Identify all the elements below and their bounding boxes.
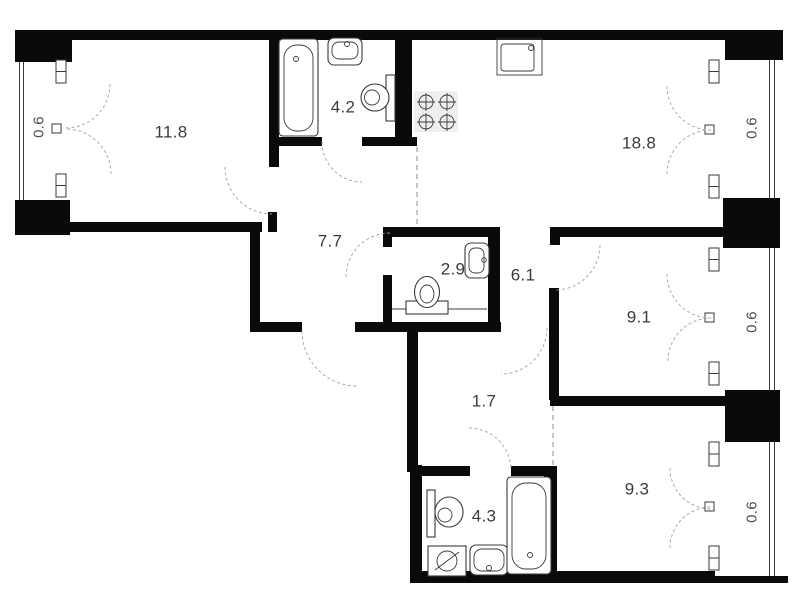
balcony-area-label: 0.6	[744, 311, 761, 333]
door-handle	[705, 313, 714, 322]
bathroom-area-label: 4.2	[331, 98, 356, 117]
wc-sink	[465, 243, 489, 278]
stove	[414, 91, 458, 132]
sink-2	[470, 545, 508, 575]
balcony-door-arc	[66, 84, 110, 128]
wc-area-label: 2.9	[441, 260, 466, 279]
door-handle	[705, 125, 714, 134]
room-area-label: 11.8	[154, 123, 187, 142]
balcony-area-label: 0.6	[744, 117, 761, 139]
bathroom2-area-label: 4.3	[472, 507, 497, 526]
balcony-door-arc	[66, 129, 111, 174]
balcony-door-arc	[667, 130, 711, 174]
window-frame	[709, 248, 719, 271]
corridor-area-label: 6.1	[511, 266, 536, 285]
kitchen-area-label: 18.8	[622, 134, 656, 153]
sink	[328, 38, 362, 65]
door-handle	[52, 124, 61, 133]
bathroom-door-arc	[322, 142, 362, 182]
bedroom2-area-label: 9.3	[625, 480, 650, 499]
window-frame	[709, 442, 719, 466]
bedroom-area-label: 9.1	[627, 308, 652, 327]
corridor-door-arc	[501, 328, 547, 374]
bedroom-door-arc	[555, 245, 600, 290]
window-frame	[56, 174, 66, 197]
balcony-door-arc	[670, 507, 711, 548]
entrance-door-arc	[302, 331, 357, 386]
window-frame	[56, 60, 66, 83]
room-door-arc	[225, 167, 272, 214]
washing-machine	[428, 546, 466, 576]
balcony-area-label: 0.6	[744, 501, 761, 523]
toilet-2	[427, 490, 463, 537]
bathroom2-door-arc	[469, 428, 511, 470]
bathtub	[279, 39, 318, 136]
room-labels: 11.8 4.2 18.8 7.7 2.9 6.1 9.1 1.7 9.3 4.…	[154, 98, 656, 526]
window-frame	[709, 60, 719, 83]
balcony-door-arc	[667, 274, 711, 318]
window-frame	[709, 362, 719, 385]
balcony-area-label: 0.6	[31, 116, 48, 138]
floor-plan-svg: 11.8 4.2 18.8 7.7 2.9 6.1 9.1 1.7 9.3 4.…	[0, 0, 800, 602]
floor-plan: 11.8 4.2 18.8 7.7 2.9 6.1 9.1 1.7 9.3 4.…	[0, 0, 800, 602]
door-handle	[705, 502, 714, 511]
corridor2-area-label: 1.7	[472, 392, 497, 411]
walls	[15, 30, 788, 583]
bathtub-2	[507, 477, 551, 574]
window-frame	[709, 546, 719, 570]
window-frame	[709, 175, 719, 198]
balcony-door-arc	[667, 86, 711, 130]
hallway-area-label: 7.7	[318, 232, 343, 251]
toilet	[361, 75, 395, 121]
kitchen-sink	[497, 39, 542, 75]
balcony-door-arc	[668, 318, 711, 361]
wc-toilet	[406, 277, 448, 315]
